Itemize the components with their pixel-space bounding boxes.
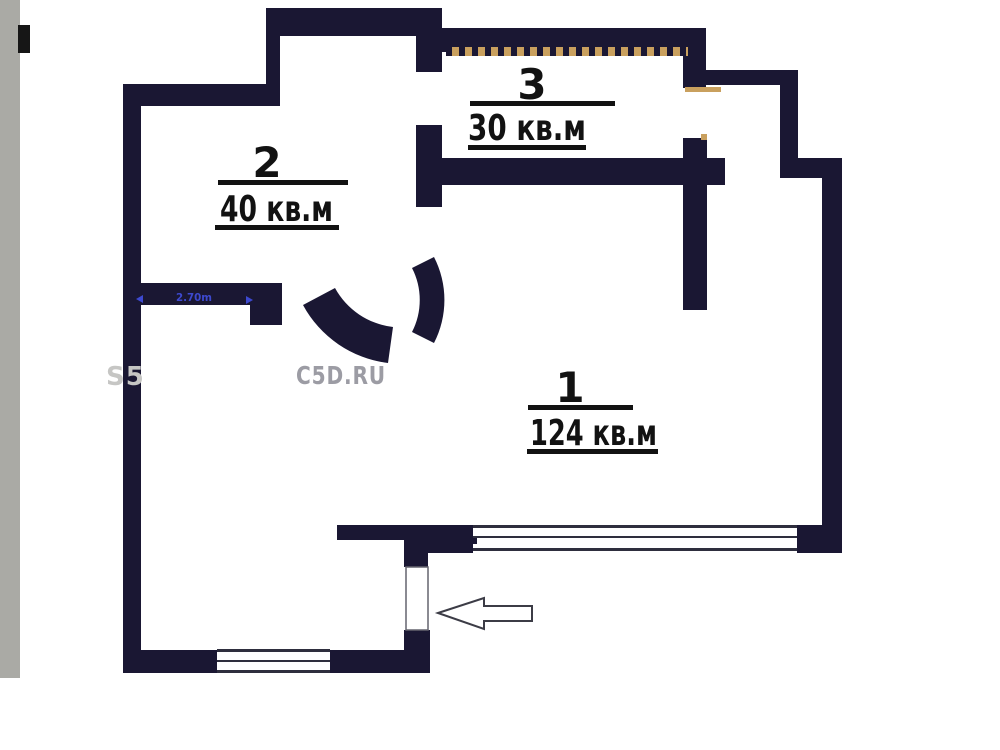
wall-room3-left-pillar: [416, 125, 442, 207]
curved-wall-small: [412, 257, 444, 343]
window-cap-left: [208, 650, 217, 673]
room-2-number: 2: [252, 138, 281, 187]
wall-right: [822, 158, 842, 553]
watermark-right: С5D.RU: [296, 361, 386, 390]
room-2-area-underline: [215, 225, 339, 230]
window-cap-right: [330, 650, 343, 673]
room-1-area: 124 кв.м: [530, 413, 657, 454]
curved-wall-large: [303, 288, 393, 363]
room-2-area: 40 кв.м: [220, 189, 333, 230]
room-3-area-underline: [468, 145, 586, 150]
room-3-label-group: 3 30 кв.м: [468, 60, 615, 150]
entrance-arrow-icon: [438, 598, 532, 629]
room-2-number-underline: [218, 180, 348, 185]
wall-right-bottom-block: [797, 525, 842, 553]
dimension-label: 2.70m: [176, 291, 212, 304]
room-3-area: 30 кв.м: [468, 108, 586, 149]
window-bottom-right: [473, 525, 797, 551]
room-3-number-underline: [470, 101, 615, 106]
wall-bottom-mid: [343, 650, 430, 673]
wall-room2-top: [123, 84, 280, 106]
left-strip-marker: [18, 25, 30, 53]
left-gray-strip: [0, 0, 20, 678]
floor-plan-page: С5D.RU: [0, 0, 1000, 750]
wall-right-upper: [780, 70, 798, 170]
wall-entry-block-a: [404, 540, 473, 553]
wall-connector: [266, 8, 280, 92]
wall-entry-top: [337, 525, 473, 540]
wall-room2-bottom-end: [250, 283, 282, 325]
room-2-label-group: 2 40 кв.м: [215, 138, 348, 230]
entrance-door: [406, 567, 428, 630]
wall-entry-block-b: [404, 553, 428, 567]
wall-room1-pillar: [683, 138, 707, 310]
room-1-area-underline: [527, 449, 658, 454]
room-1-number-underline: [528, 405, 633, 410]
room-1-number: 1: [555, 363, 584, 412]
room-1-label-group: 1 124 кв.м: [527, 363, 658, 454]
wall-bottom-left: [123, 650, 208, 673]
watermark-left: S5: [106, 362, 145, 392]
wall-room3-room1-divider: [442, 158, 725, 185]
wall-top: [268, 8, 440, 36]
wall-room3-right: [683, 28, 706, 88]
window-bottom-left: [217, 649, 330, 673]
floor-plan-canvas: С5D.RU: [0, 0, 1000, 750]
wall-room3-left-upper: [416, 8, 442, 72]
